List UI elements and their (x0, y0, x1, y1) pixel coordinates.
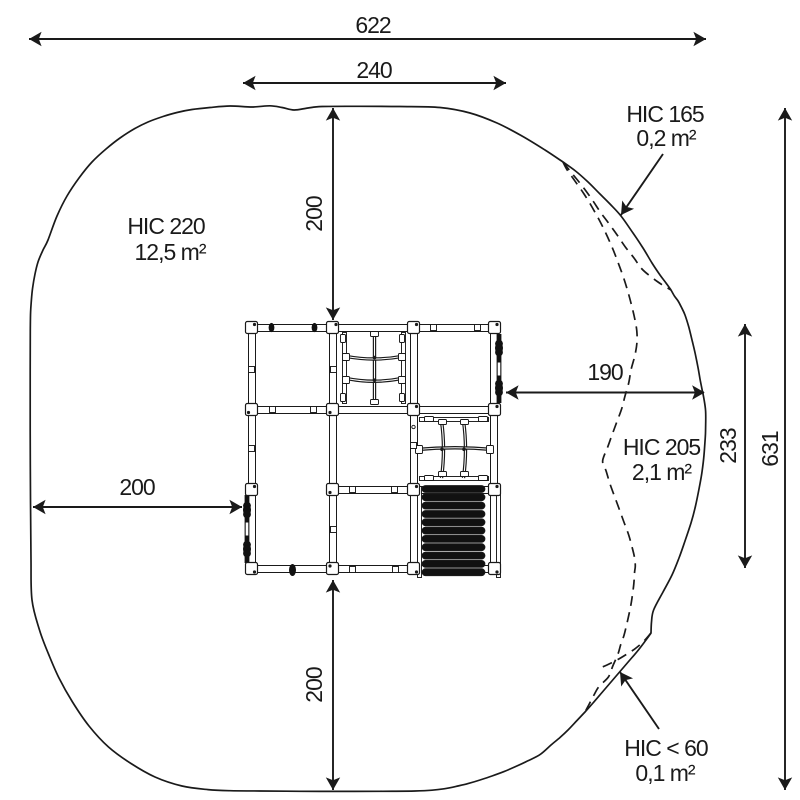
svg-text:HIC 220: HIC 220 (127, 213, 205, 239)
svg-text:HIC 165: HIC 165 (626, 101, 704, 127)
svg-text:190: 190 (587, 359, 623, 385)
svg-text:622: 622 (355, 12, 391, 38)
svg-text:0,2 m²: 0,2 m² (636, 125, 697, 151)
svg-text:HIC 205: HIC 205 (623, 434, 701, 460)
svg-text:200: 200 (119, 474, 155, 500)
svg-text:0,1 m²: 0,1 m² (635, 760, 696, 786)
svg-text:200: 200 (301, 196, 327, 232)
svg-text:233: 233 (715, 428, 741, 464)
svg-text:240: 240 (356, 57, 392, 83)
svg-text:200: 200 (301, 667, 327, 703)
svg-text:12,5 m²: 12,5 m² (135, 239, 207, 265)
svg-text:631: 631 (757, 431, 783, 467)
svg-text:HIC < 60: HIC < 60 (624, 735, 708, 761)
svg-text:2,1 m²: 2,1 m² (632, 459, 693, 485)
